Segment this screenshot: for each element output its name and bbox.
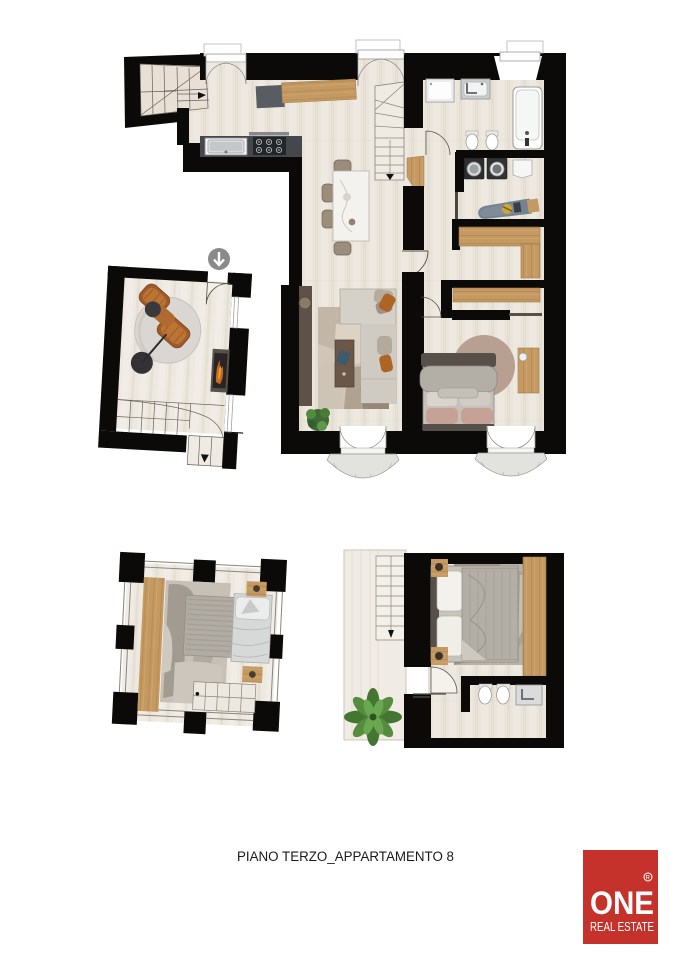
svg-text:REAL ESTATE: REAL ESTATE (590, 919, 654, 934)
svg-text:PIANO TERZO_APPARTAMENTO 8: PIANO TERZO_APPARTAMENTO 8 (237, 849, 454, 864)
svg-text:R: R (646, 876, 651, 882)
svg-text:ONE: ONE (590, 885, 654, 921)
